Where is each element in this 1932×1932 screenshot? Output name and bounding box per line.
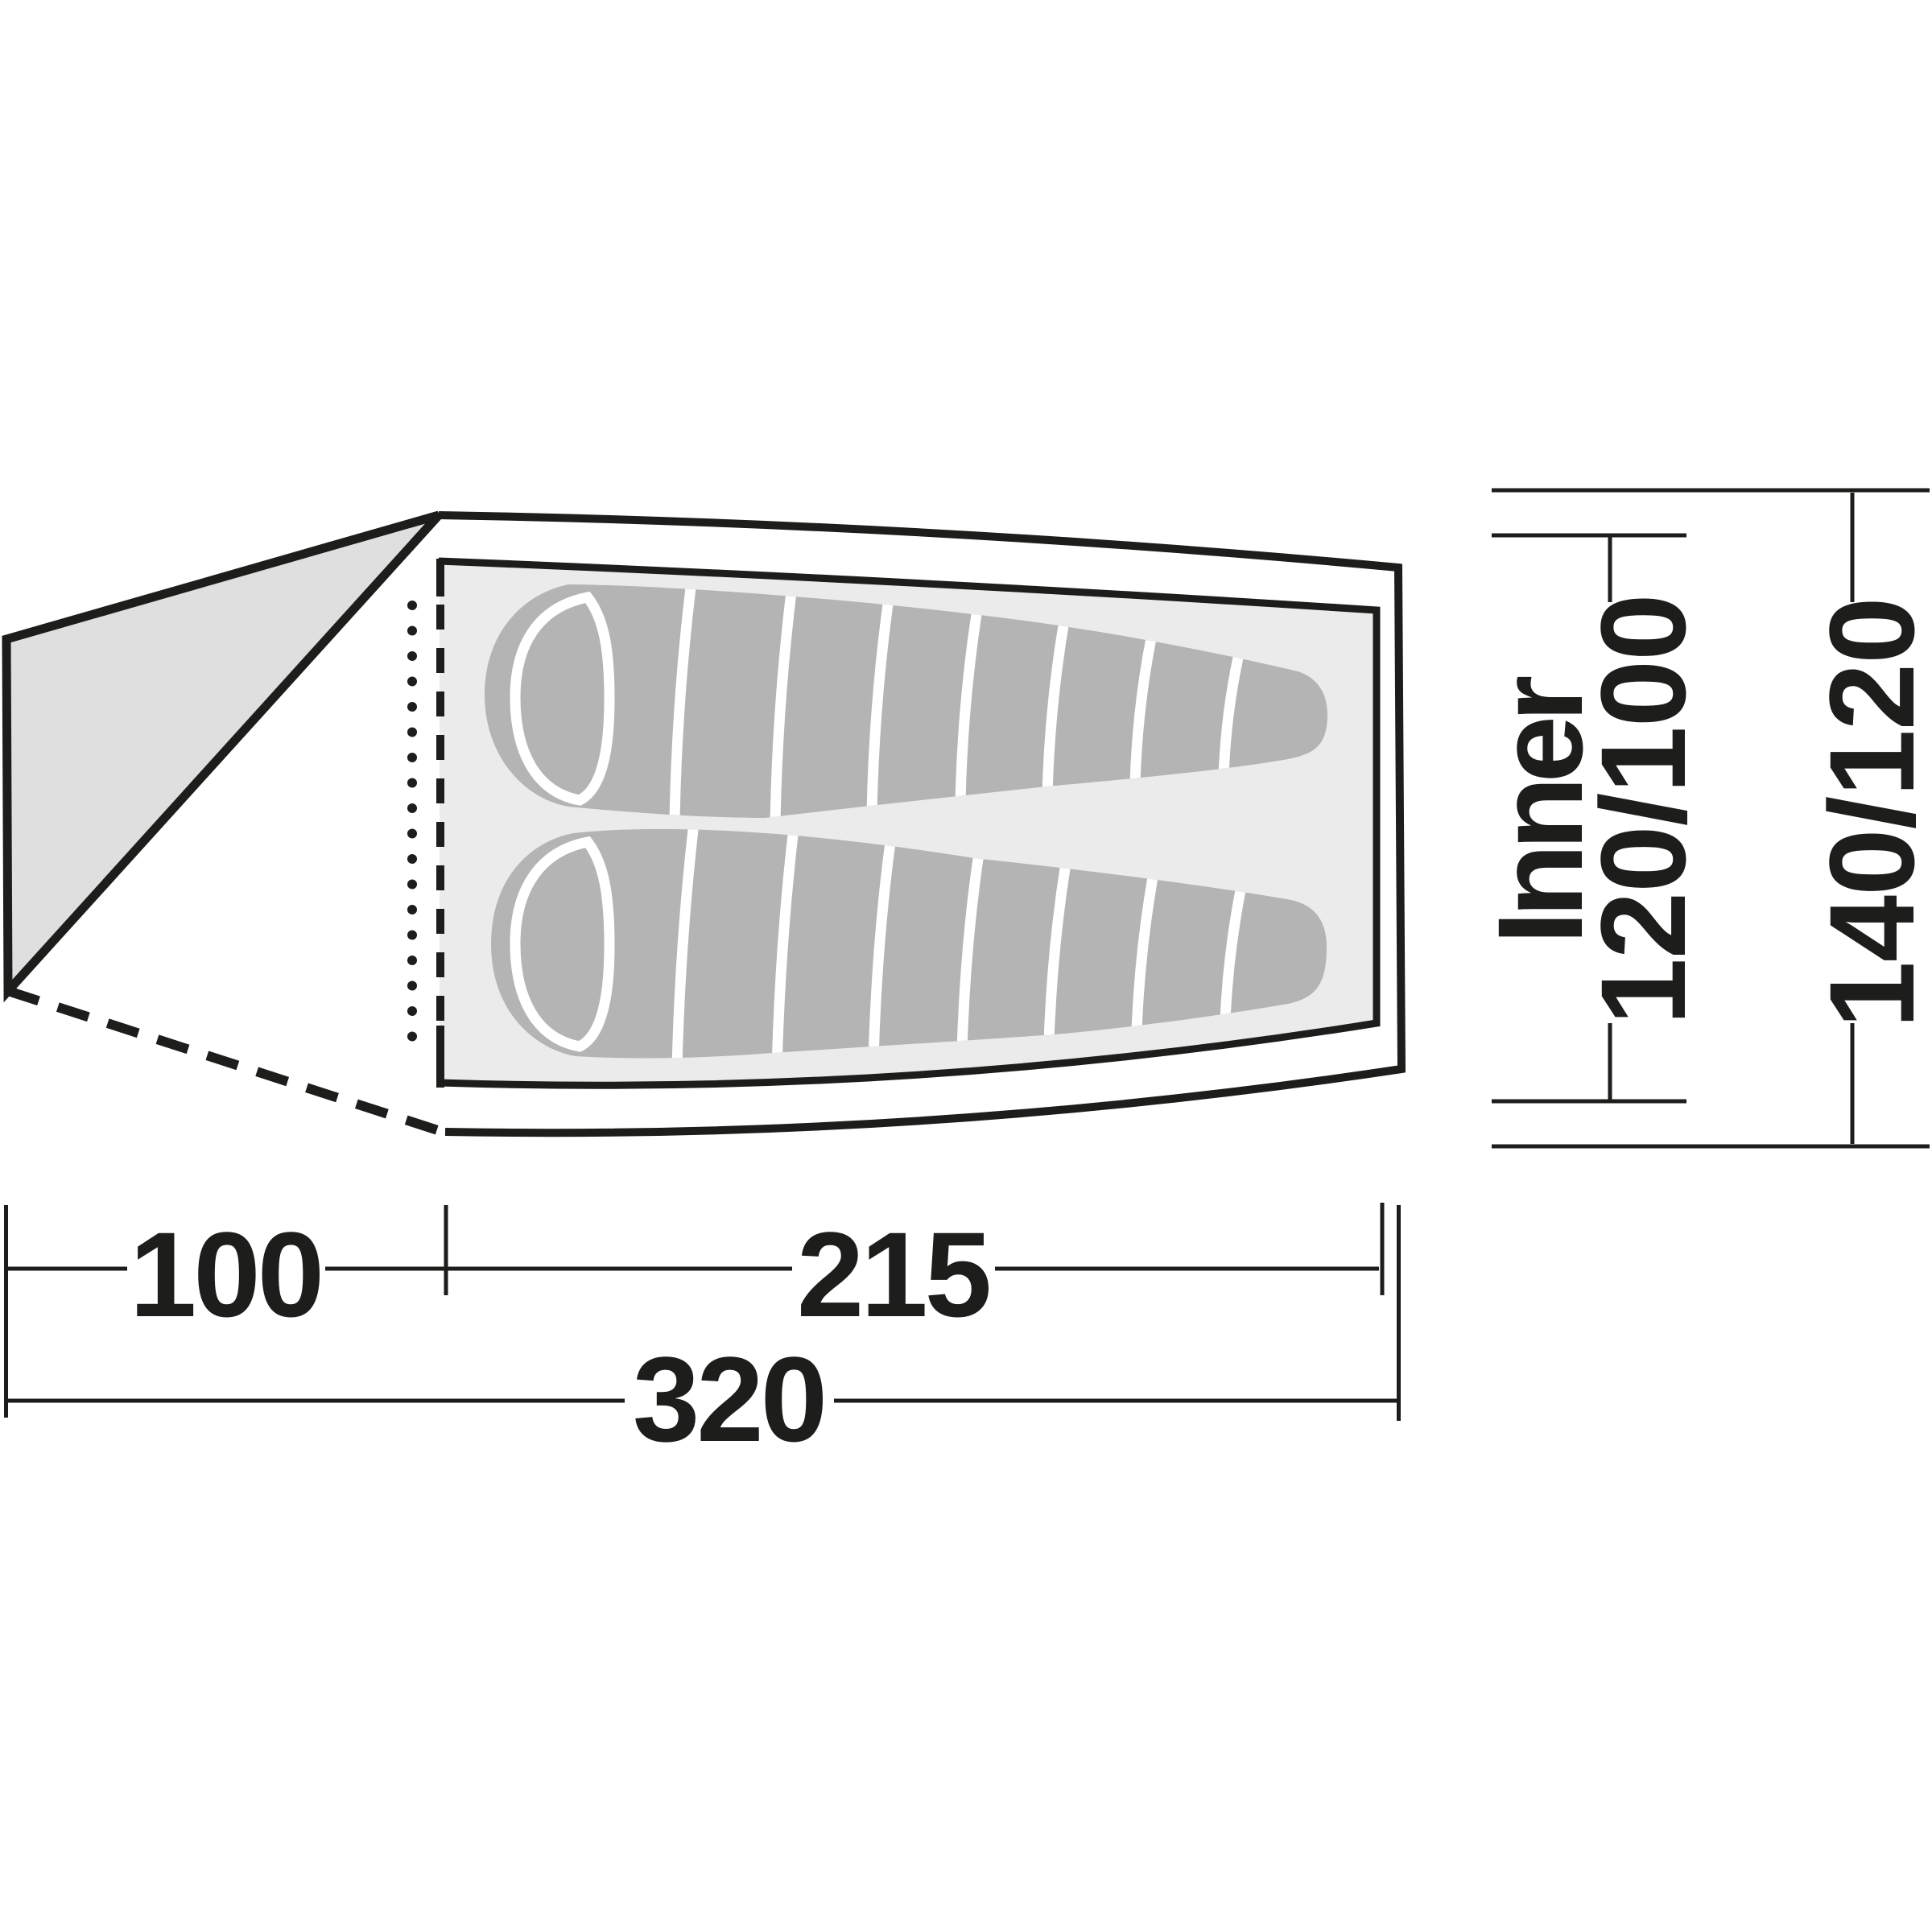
svg-text:100: 100 xyxy=(130,1207,321,1342)
svg-text:120/100: 120/100 xyxy=(1575,594,1711,1025)
svg-text:140/120: 140/120 xyxy=(1804,597,1932,1028)
svg-text:320: 320 xyxy=(633,1331,824,1467)
svg-text:215: 215 xyxy=(797,1207,989,1342)
